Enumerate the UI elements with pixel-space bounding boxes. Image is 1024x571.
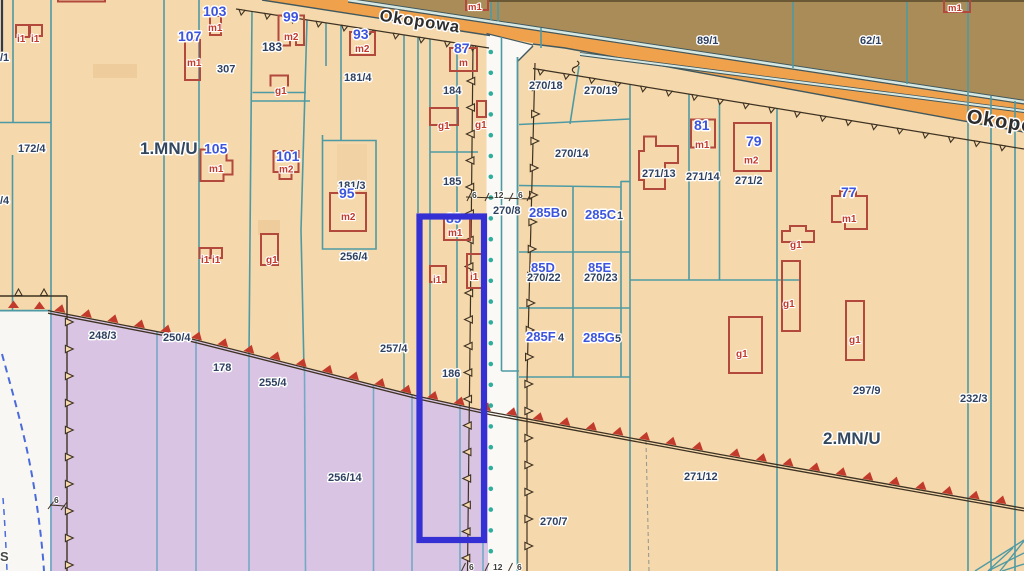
svg-text:m2: m2 xyxy=(355,44,370,55)
svg-text:6: 6 xyxy=(469,562,474,571)
svg-text:285C: 285C xyxy=(585,207,617,222)
svg-text:m2: m2 xyxy=(744,156,759,167)
svg-text:270/19: 270/19 xyxy=(584,85,618,97)
svg-text:250/4: 250/4 xyxy=(163,332,191,344)
svg-text:g1: g1 xyxy=(849,335,861,346)
svg-text:g1: g1 xyxy=(266,255,278,266)
svg-text:g1: g1 xyxy=(790,240,802,251)
svg-text:270/14: 270/14 xyxy=(555,148,590,160)
svg-text:m1: m1 xyxy=(448,228,463,239)
svg-text:285B: 285B xyxy=(529,205,560,220)
svg-text:i1: i1 xyxy=(31,34,40,45)
svg-text:12: 12 xyxy=(494,190,504,200)
svg-text:255/4: 255/4 xyxy=(259,377,287,389)
svg-text:85E: 85E xyxy=(588,260,611,275)
svg-text:i1: i1 xyxy=(17,34,26,45)
svg-text:5: 5 xyxy=(615,333,621,345)
svg-text:285F: 285F xyxy=(526,329,556,344)
svg-text:g1: g1 xyxy=(475,120,487,131)
svg-text:105: 105 xyxy=(204,141,228,157)
svg-text:103: 103 xyxy=(203,3,227,19)
svg-text:i1: i1 xyxy=(470,272,479,283)
svg-text:6: 6 xyxy=(472,190,477,200)
svg-text:0: 0 xyxy=(561,208,567,220)
svg-text:m1: m1 xyxy=(208,23,223,34)
svg-text:183: 183 xyxy=(262,40,282,54)
svg-text:12: 12 xyxy=(493,562,503,571)
svg-text:101: 101 xyxy=(276,148,300,164)
svg-text:257/4: 257/4 xyxy=(380,343,408,355)
svg-text:85D: 85D xyxy=(531,260,555,275)
svg-text:m1: m1 xyxy=(187,58,202,69)
svg-text:m1: m1 xyxy=(468,2,482,13)
svg-text:107: 107 xyxy=(178,28,202,44)
svg-text:271/2: 271/2 xyxy=(735,175,763,187)
svg-text:172/4: 172/4 xyxy=(18,143,46,155)
svg-text:184: 184 xyxy=(443,85,462,97)
svg-text:79: 79 xyxy=(746,133,762,149)
svg-text:77: 77 xyxy=(841,184,857,200)
svg-text:m2: m2 xyxy=(279,165,294,176)
svg-text:232/3: 232/3 xyxy=(960,393,988,405)
svg-text:i1: i1 xyxy=(433,275,442,286)
svg-text:99: 99 xyxy=(283,9,299,25)
svg-text:g1: g1 xyxy=(275,86,287,97)
svg-text:248/3: 248/3 xyxy=(89,330,117,342)
svg-text:S: S xyxy=(0,549,9,564)
svg-text:m1: m1 xyxy=(209,164,224,175)
svg-text:i1: i1 xyxy=(201,255,210,266)
svg-text:/4: /4 xyxy=(0,195,10,207)
svg-text:256/14: 256/14 xyxy=(328,472,363,484)
svg-text:g1: g1 xyxy=(783,299,795,310)
svg-text:93: 93 xyxy=(353,26,369,42)
svg-text:87: 87 xyxy=(454,40,470,56)
svg-text:285G: 285G xyxy=(583,330,615,345)
svg-text:271/12: 271/12 xyxy=(684,471,718,483)
svg-text:g1: g1 xyxy=(438,121,450,132)
svg-text:89/1: 89/1 xyxy=(697,35,718,47)
svg-text:6: 6 xyxy=(517,562,522,571)
svg-text:62/1: 62/1 xyxy=(860,35,881,47)
svg-text:81: 81 xyxy=(694,117,710,133)
svg-text:270/8: 270/8 xyxy=(493,205,521,217)
svg-text:307: 307 xyxy=(217,64,235,76)
svg-text:256/4: 256/4 xyxy=(340,251,368,263)
svg-text:4: 4 xyxy=(558,332,565,344)
svg-text:2.MN/U: 2.MN/U xyxy=(823,429,881,448)
svg-text:1: 1 xyxy=(617,210,623,222)
svg-text:m1: m1 xyxy=(948,3,962,14)
svg-text:m1: m1 xyxy=(695,140,710,151)
svg-text:m2: m2 xyxy=(341,212,356,223)
svg-text:271/14: 271/14 xyxy=(686,171,721,183)
svg-text:186: 186 xyxy=(442,368,460,380)
svg-text:6: 6 xyxy=(54,495,59,505)
svg-text:181/4: 181/4 xyxy=(344,72,372,84)
svg-text:m: m xyxy=(459,58,468,69)
svg-text:i1: i1 xyxy=(212,255,221,266)
svg-text:185: 185 xyxy=(443,176,461,188)
svg-text:m1: m1 xyxy=(842,214,857,225)
svg-text:95: 95 xyxy=(339,185,355,201)
svg-text:297/9: 297/9 xyxy=(853,385,881,397)
svg-text:178: 178 xyxy=(213,362,231,374)
svg-text:g1: g1 xyxy=(736,349,748,360)
svg-text:m2: m2 xyxy=(284,32,299,43)
svg-text:6: 6 xyxy=(518,190,523,200)
svg-text:271/13: 271/13 xyxy=(642,168,676,180)
svg-text:1.MN/U: 1.MN/U xyxy=(140,139,198,158)
svg-text:/1: /1 xyxy=(0,52,9,64)
svg-text:270/7: 270/7 xyxy=(540,516,568,528)
svg-text:270/18: 270/18 xyxy=(529,80,563,92)
